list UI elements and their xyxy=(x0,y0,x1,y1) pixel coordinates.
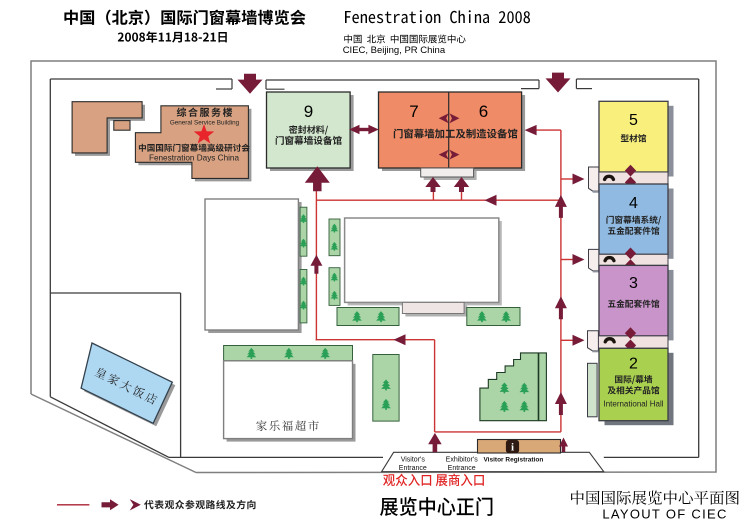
svg-text:LAYOUT OF CIEC: LAYOUT OF CIEC xyxy=(602,507,727,522)
svg-text:5: 5 xyxy=(629,112,638,129)
svg-text:Entrance: Entrance xyxy=(399,465,427,472)
svg-text:4: 4 xyxy=(629,195,638,212)
svg-text:Entrance: Entrance xyxy=(448,465,476,472)
svg-text:3: 3 xyxy=(629,275,638,292)
svg-text:2: 2 xyxy=(629,356,638,373)
svg-text:Fenestration Days China: Fenestration Days China xyxy=(149,154,240,163)
svg-text:General Service Building: General Service Building xyxy=(170,120,240,127)
svg-text:i: i xyxy=(511,442,514,454)
svg-text:7: 7 xyxy=(409,102,418,121)
svg-text:9: 9 xyxy=(304,102,313,121)
svg-text:Exhibitor's: Exhibitor's xyxy=(446,457,479,464)
svg-text:CIEC, Beijing, PR China: CIEC, Beijing, PR China xyxy=(343,45,446,56)
svg-text:International Hall: International Hall xyxy=(603,400,663,409)
svg-text:Visitor's: Visitor's xyxy=(401,457,426,464)
svg-text:6: 6 xyxy=(479,102,488,121)
svg-text:Visitor Registration: Visitor Registration xyxy=(483,457,543,464)
